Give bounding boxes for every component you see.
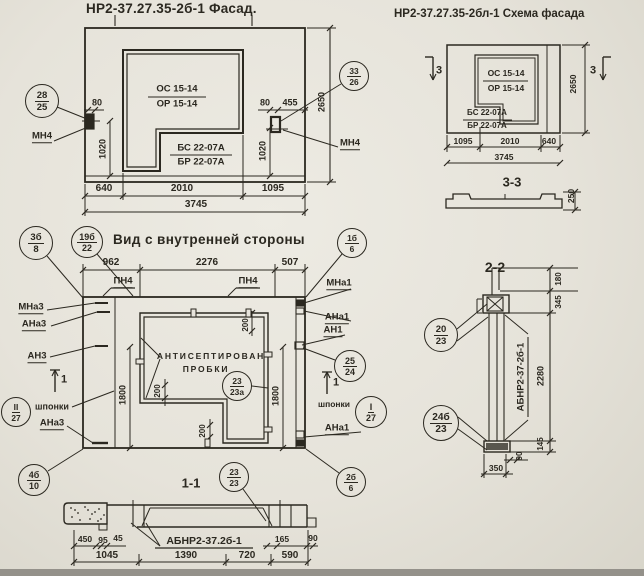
marker-II-27: II27 (1, 397, 31, 427)
section-mark-1-left: 1 (61, 375, 67, 386)
dim-455: 455 (282, 99, 297, 108)
marker-24б-23: 24б23 (423, 405, 459, 441)
dim-2276: 2276 (196, 258, 218, 268)
dim-250: 250 (567, 189, 576, 203)
dim-95: 95 (98, 536, 107, 545)
dim-200-top: 200 (242, 318, 250, 331)
marker-bottom: 26 (347, 77, 360, 87)
dim-180: 180 (555, 272, 563, 285)
dim-590: 590 (282, 551, 299, 561)
marker-bottom: 27 (364, 413, 378, 423)
dim-1095-scheme: 1095 (454, 137, 473, 146)
dim-200-bottom: 200 (199, 424, 207, 437)
marker-bottom: 23а (228, 387, 246, 397)
dim-3745-scheme: 3745 (495, 153, 514, 162)
note-antiseptic: АНТИСЕПТИРОВАН (157, 352, 265, 361)
dim-80-left: 80 (92, 99, 102, 108)
section-mark-3-left: 3 (436, 66, 442, 77)
dim-1045: 1045 (96, 551, 118, 561)
dim-1800-left: 1800 (119, 385, 128, 405)
mark-bs-22-07a: БС 22-07А (177, 143, 224, 153)
scheme-title: НР2-37.27.35-2бл-1 Схема фасада (394, 8, 584, 20)
dim-90-s22: 90 (516, 452, 524, 461)
part-abnr2-37-2b-1: АБНР2-37.2б-1 (166, 536, 241, 547)
section-3-3-label: 3-3 (503, 176, 522, 189)
anchor-ana3: АНа3 (22, 319, 46, 331)
section-2-2-label: 2-2 (485, 260, 505, 274)
mark-os-15-14-scheme: ОС 15-14 (488, 69, 525, 78)
marker-bottom: 6 (347, 483, 356, 493)
dim-2010: 2010 (171, 184, 193, 194)
marker-28-25: 2825 (25, 84, 59, 118)
marker-top: 20 (434, 324, 449, 336)
dim-200-left: 200 (154, 384, 162, 397)
marker-4б-10: 4б10 (18, 464, 50, 496)
dim-350: 350 (489, 464, 503, 473)
dim-80-right: 80 (260, 99, 270, 108)
dim-1390: 1390 (175, 551, 197, 561)
marker-top: 24б (430, 412, 451, 424)
marker-top: II (12, 402, 21, 413)
dim-3745-facade: 3745 (185, 200, 207, 210)
mark-or-15-14-scheme: ОР 15-14 (488, 84, 524, 93)
dim-90-s11: 90 (308, 534, 317, 543)
marker-1б-6: 1б6 (337, 228, 367, 258)
anchor-pn4-left: ПН4 (114, 276, 133, 288)
dim-1020-left: 1020 (99, 139, 108, 159)
dim-345: 345 (555, 295, 563, 308)
marker-top: 3б (28, 232, 43, 244)
blueprint-page: НР2-37.27.35-2б-1 Фасад. НР2-37.27.35-2б… (0, 0, 644, 576)
dim-45: 45 (113, 534, 122, 543)
section-mark-1-right: 1 (333, 378, 339, 389)
marker-23-23а: 2323а (222, 371, 252, 401)
facade-title: НР2-37.27.35-2б-1 Фасад. (86, 1, 257, 16)
anchor-ana1: АНа1 (325, 312, 349, 324)
part-abnr2-37-2b-1-s22: АБНР2-37-2б-1 (516, 343, 526, 412)
anchor-mn4-right: МН4 (340, 138, 360, 150)
marker-top: 19б (77, 232, 97, 243)
marker-bottom: 8 (31, 244, 40, 255)
scan-edge-strip (0, 569, 644, 576)
marker-top: 25 (343, 356, 357, 367)
dim-1020-right: 1020 (259, 141, 268, 161)
anchor-an1: АН1 (323, 325, 342, 337)
anchor-mna1: МНа1 (326, 278, 351, 290)
dim-962: 962 (103, 258, 120, 268)
marker-top: I (368, 402, 375, 413)
marker-2б-6: 2б6 (336, 467, 366, 497)
section-1-1-label: 1-1 (182, 477, 201, 490)
dim-2280: 2280 (537, 366, 546, 386)
dim-1800-right: 1800 (272, 386, 281, 406)
anchor-ana1-bottom: АНа1 (325, 423, 349, 435)
anchor-pn4-right: ПН4 (239, 276, 258, 288)
marker-top: 1б (345, 233, 359, 244)
marker-top: 33 (347, 66, 360, 77)
marker-bottom: 23 (227, 478, 240, 488)
marker-bottom: 25 (35, 102, 50, 113)
marker-top: 2б (344, 472, 358, 483)
dim-507: 507 (282, 258, 299, 268)
anchor-an3: АН3 (27, 351, 46, 363)
dim-2650-scheme: 2650 (569, 75, 578, 94)
dim-145: 145 (537, 437, 545, 450)
dim-640-scheme: 640 (542, 137, 556, 146)
inner-view-title: Вид с внутренней стороны (113, 232, 305, 247)
mark-br-scheme: БР 22-07А (467, 122, 507, 130)
note-shponki-right: шпонки (318, 400, 350, 409)
marker-3б-8: 3б8 (19, 226, 53, 260)
mark-or-15-14: ОР 15-14 (157, 99, 198, 109)
marker-20-23: 2023 (424, 318, 458, 352)
marker-bottom: 10 (27, 481, 41, 491)
dim-640: 640 (96, 184, 113, 194)
dim-1095: 1095 (262, 184, 284, 194)
marker-bottom: 23 (434, 336, 449, 347)
dim-720: 720 (239, 551, 256, 561)
mark-os-15-14: ОС 15-14 (156, 84, 197, 94)
marker-bottom: 27 (9, 413, 22, 423)
marker-top: 4б (27, 470, 42, 481)
mark-bs-scheme: БС 22-07А (467, 109, 507, 117)
marker-bottom: 6 (348, 244, 357, 254)
marker-top: 23 (230, 376, 243, 387)
anchor-mna3: МНа3 (18, 302, 43, 314)
marker-I-27: I27 (355, 396, 387, 428)
marker-bottom: 24 (343, 367, 357, 377)
marker-top: 28 (35, 90, 50, 102)
marker-bottom: 22 (80, 243, 94, 253)
section-mark-3-right: 3 (590, 66, 596, 77)
note-shponki-left: шпонки (35, 403, 69, 412)
dim-165: 165 (275, 535, 289, 544)
anchor-mn4-left: МН4 (32, 131, 52, 143)
anchor-ana3-bottom: АНа3 (40, 418, 64, 430)
marker-top: 23 (227, 467, 240, 478)
marker-25-24: 2524 (334, 350, 366, 382)
marker-19б-22: 19б22 (71, 226, 103, 258)
dim-2650-facade: 2650 (318, 92, 327, 112)
marker-33-26: 3326 (339, 61, 369, 91)
mark-br-22-07a: БР 22-07А (178, 157, 225, 167)
marker-bottom: 23 (433, 424, 448, 435)
marker-23-23: 2323 (219, 462, 249, 492)
dim-2010-scheme: 2010 (501, 137, 520, 146)
labels-layer: НР2-37.27.35-2б-1 Фасад. НР2-37.27.35-2б… (0, 0, 644, 576)
note-plugs: ПРОБКИ (183, 365, 230, 374)
dim-450: 450 (78, 535, 92, 544)
